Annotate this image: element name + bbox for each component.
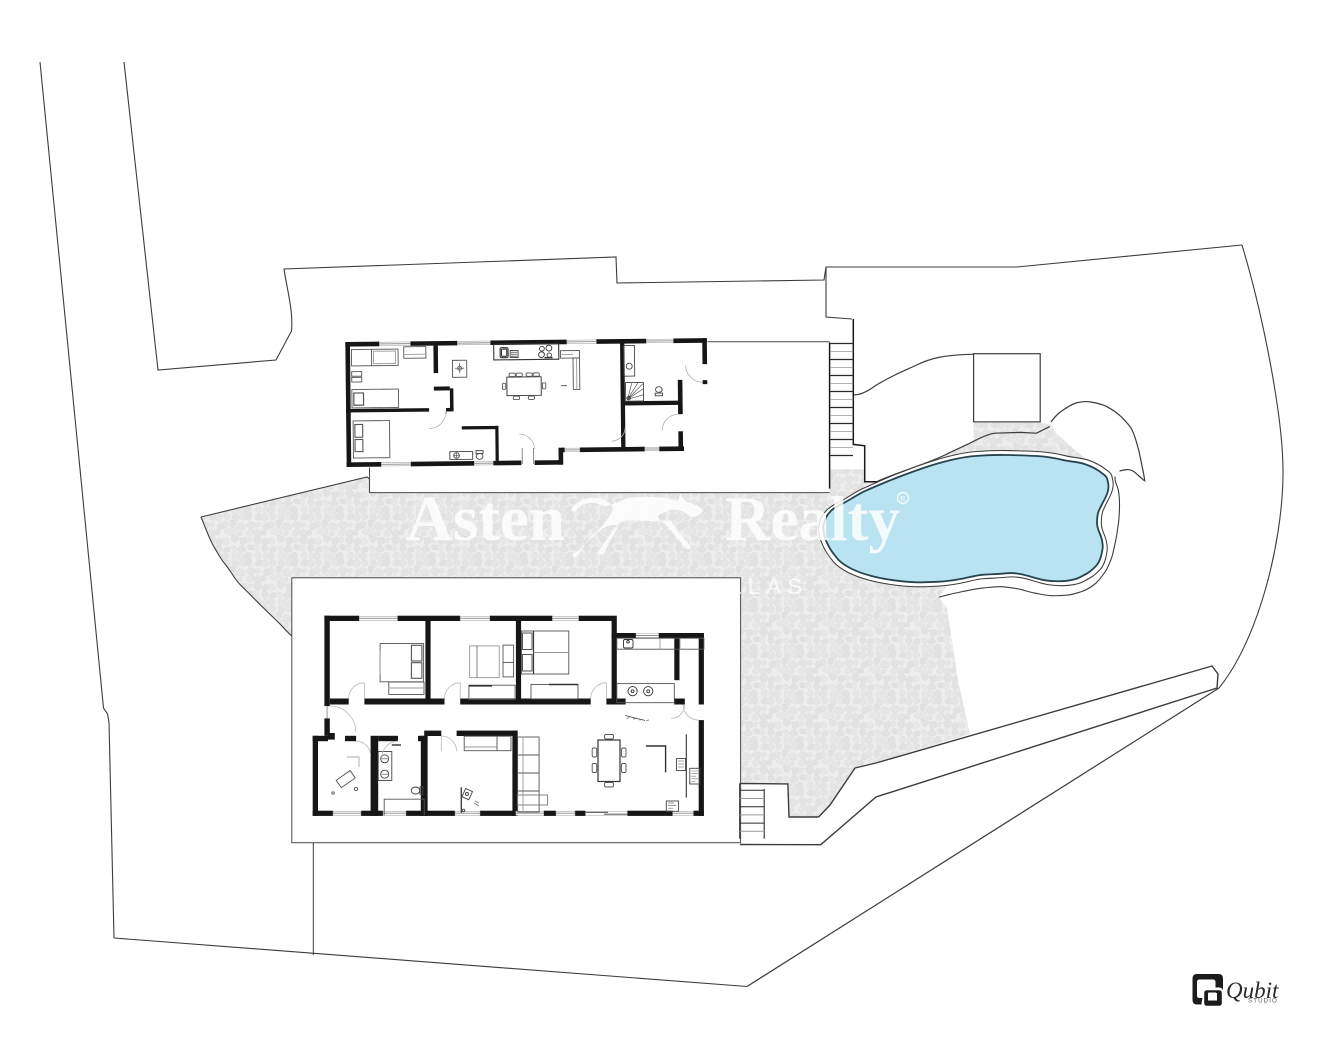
svg-text:VILLAS: VILLAS xyxy=(696,574,808,599)
svg-text:STUDIO: STUDIO xyxy=(1248,997,1278,1004)
svg-text:Asten: Asten xyxy=(406,483,565,555)
svg-text:R: R xyxy=(900,494,906,503)
svg-text:Realty: Realty xyxy=(725,484,900,554)
